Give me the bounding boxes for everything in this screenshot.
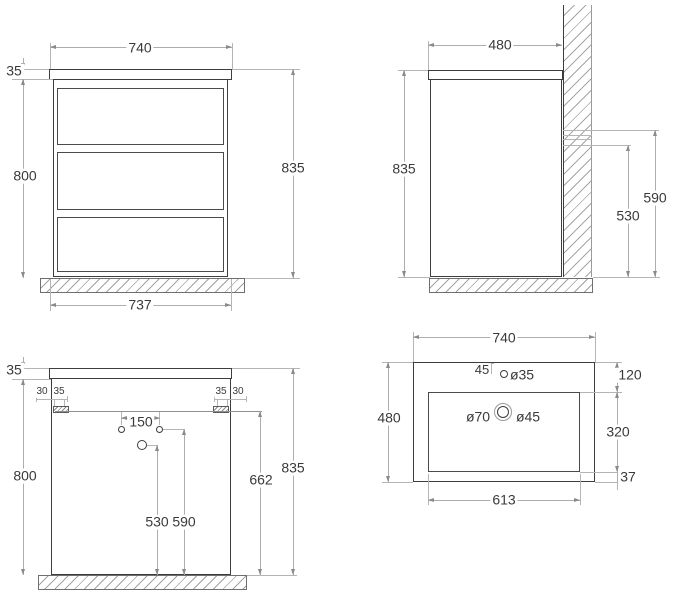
dim-rear-total-height: 835 [279, 461, 306, 476]
dim-side-outlet-bottom: 530 [614, 209, 641, 224]
rear-siphon-hole [137, 440, 147, 450]
technical-drawing: 740 35 800 835 737 480 [0, 0, 673, 600]
dim-side-total-height: 835 [390, 162, 417, 177]
dim-side-depth: 480 [486, 38, 513, 53]
dimension-line [214, 399, 246, 400]
rear-outlet-hole-right [156, 426, 163, 433]
outlet-line-top [563, 130, 659, 131]
wall-hatch [563, 5, 592, 277]
dim-front-top-thickness: 35 [4, 64, 24, 79]
outlet-line [563, 139, 592, 140]
dim-rear-siphon-height: 530 [143, 515, 170, 530]
dim-front-body-height: 800 [11, 169, 38, 184]
rear-floor-hatch [38, 575, 247, 590]
dimension-line [260, 411, 261, 575]
extension-line [12, 379, 51, 380]
dim-sink-basin-depth: 320 [604, 425, 631, 440]
dim-rear-bracket-height: 662 [247, 473, 274, 488]
extension-line [247, 575, 297, 576]
dim-front-width-bottom: 737 [126, 298, 153, 313]
tick [64, 399, 65, 406]
dim-rear-right-bracket: 35 [214, 387, 227, 398]
dim-rear-right-offset: 30 [231, 387, 244, 398]
dim-rear-top-thickness: 35 [4, 363, 24, 378]
outlet-line-bottom [563, 145, 631, 146]
extension-line [595, 332, 596, 362]
extension-line [580, 472, 622, 473]
dim-sink-width: 740 [490, 331, 517, 346]
extension-line [382, 482, 413, 483]
dim-faucet-diameter: ø35 [508, 368, 536, 383]
faucet-hole [500, 370, 508, 378]
dim-rear-holes-spacing: 150 [127, 415, 154, 430]
extension-line [12, 79, 53, 80]
dim-rear-outlet-height: 590 [170, 515, 197, 530]
extension-line [245, 278, 300, 279]
side-cabinet-body [430, 79, 562, 277]
dim-front-width-top: 740 [126, 41, 153, 56]
front-floor-hatch [40, 278, 245, 293]
tick [227, 399, 228, 406]
dim-faucet-offset: 45 [473, 363, 491, 377]
tick [54, 399, 55, 406]
dim-rear-body-height: 800 [11, 469, 38, 484]
dim-side-outlet-top: 590 [641, 191, 668, 206]
dimension-line [36, 399, 67, 400]
front-drawer-2 [57, 152, 224, 210]
extension-line [593, 277, 660, 278]
dim-sink-front-rim: 37 [618, 470, 638, 485]
extension-line [231, 279, 232, 311]
rear-outlet-hole-left [118, 426, 125, 433]
dim-sink-basin-width: 613 [490, 493, 517, 508]
dim-front-total-height: 835 [279, 161, 306, 176]
tick [246, 396, 247, 402]
extension-line [398, 277, 430, 278]
dim-sink-depth: 480 [375, 411, 402, 426]
dim-sink-back-rim: 120 [616, 368, 643, 383]
rear-cabinet-body [51, 378, 231, 575]
dimension-line [184, 429, 185, 575]
dim-rear-left-bracket: 35 [52, 387, 65, 398]
dim-drain-outer: ø70 [464, 410, 492, 425]
front-drawer-3 [57, 217, 224, 272]
drain-hole-inner [497, 406, 509, 418]
side-floor-hatch [429, 278, 593, 293]
tick [67, 396, 68, 402]
outlet-line [563, 135, 592, 136]
front-drawer-1 [57, 88, 224, 145]
tick [217, 399, 218, 406]
extension-line [580, 474, 581, 505]
dim-rear-left-offset: 30 [35, 387, 48, 398]
dim-drain-inner: ø45 [514, 410, 542, 425]
extension-line [232, 43, 233, 69]
dimension-line [157, 445, 158, 575]
